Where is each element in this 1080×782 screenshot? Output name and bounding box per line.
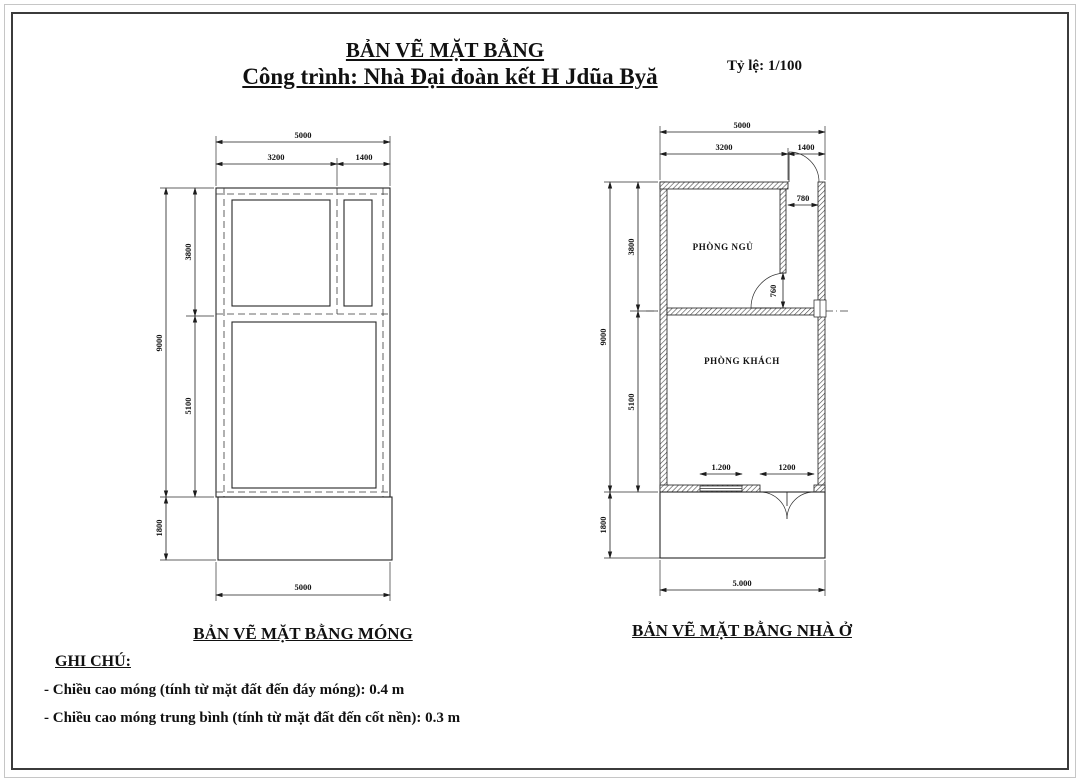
house-dim-overall-width-bottom: 5.000: [732, 578, 751, 588]
house-plan-caption: BẢN VẼ MẶT BẰNG NHÀ Ở: [602, 621, 882, 641]
house-plan-drawing: 5000 3200 1400 9000 3800 5100 1800 780 7…: [598, 120, 849, 596]
page-subtitle: Công trình: Nhà Đại đoàn kết H Jdũa Byă: [200, 64, 700, 90]
fnd-dim-bay-right: 1400: [356, 152, 373, 162]
house-dim-overall-width: 5000: [734, 120, 751, 130]
room-label-bedroom: PHÒNG NGỦ: [693, 242, 754, 252]
foundation-porch: [218, 497, 392, 560]
house-dim-overall-height: 9000: [598, 329, 608, 346]
room-label-living: PHÒNG KHÁCH: [704, 356, 780, 366]
house-dim-bay-left: 3200: [716, 142, 733, 152]
house-dim-bay-right: 1400: [798, 142, 815, 152]
fnd-dim-overall-height: 9000: [154, 335, 164, 352]
drawing-sheet: 5000 3200 1400 9000 3800 5100 1800 5000: [0, 0, 1080, 782]
house-dim-section-bottom: 5100: [626, 394, 636, 411]
house-dim-window: 1.200: [711, 462, 730, 472]
entry-door-swing: [789, 152, 819, 182]
right-wall-marker: [814, 300, 826, 317]
fnd-dim-bay-left: 3200: [268, 152, 285, 162]
fnd-dim-porch-depth: 1800: [154, 520, 164, 537]
house-dim-bedroom-door: 760: [768, 285, 778, 298]
house-dim-main-door: 1200: [779, 462, 796, 472]
fnd-dim-overall-width-bottom: 5000: [295, 582, 312, 592]
fnd-dim-section-top: 3800: [183, 244, 193, 261]
notes-heading: GHI CHÚ:: [55, 653, 131, 671]
house-dim-entry-door: 780: [797, 193, 810, 203]
scale-label: Tỷ lệ: 1/100: [727, 58, 802, 75]
foundation-plan-drawing: 5000 3200 1400 9000 3800 5100 1800 5000: [154, 130, 392, 601]
page-title: BẢN VẼ MẶT BẰNG: [240, 38, 650, 63]
note-item-1: - Chiều cao móng (tính từ mặt đất đến đá…: [44, 682, 404, 699]
note-item-2: - Chiều cao móng trung bình (tính từ mặt…: [44, 710, 460, 727]
main-double-door-swing: [760, 492, 814, 519]
house-porch: [660, 492, 825, 558]
fnd-dim-section-bottom: 5100: [183, 398, 193, 415]
house-dim-porch-depth: 1800: [598, 517, 608, 534]
plans-canvas: 5000 3200 1400 9000 3800 5100 1800 5000: [0, 0, 1080, 782]
house-dim-section-top: 3800: [626, 239, 636, 256]
fnd-dim-overall-width: 5000: [295, 130, 312, 140]
foundation-plan-caption: BẢN VẼ MẶT BẰNG MÓNG: [168, 624, 438, 644]
